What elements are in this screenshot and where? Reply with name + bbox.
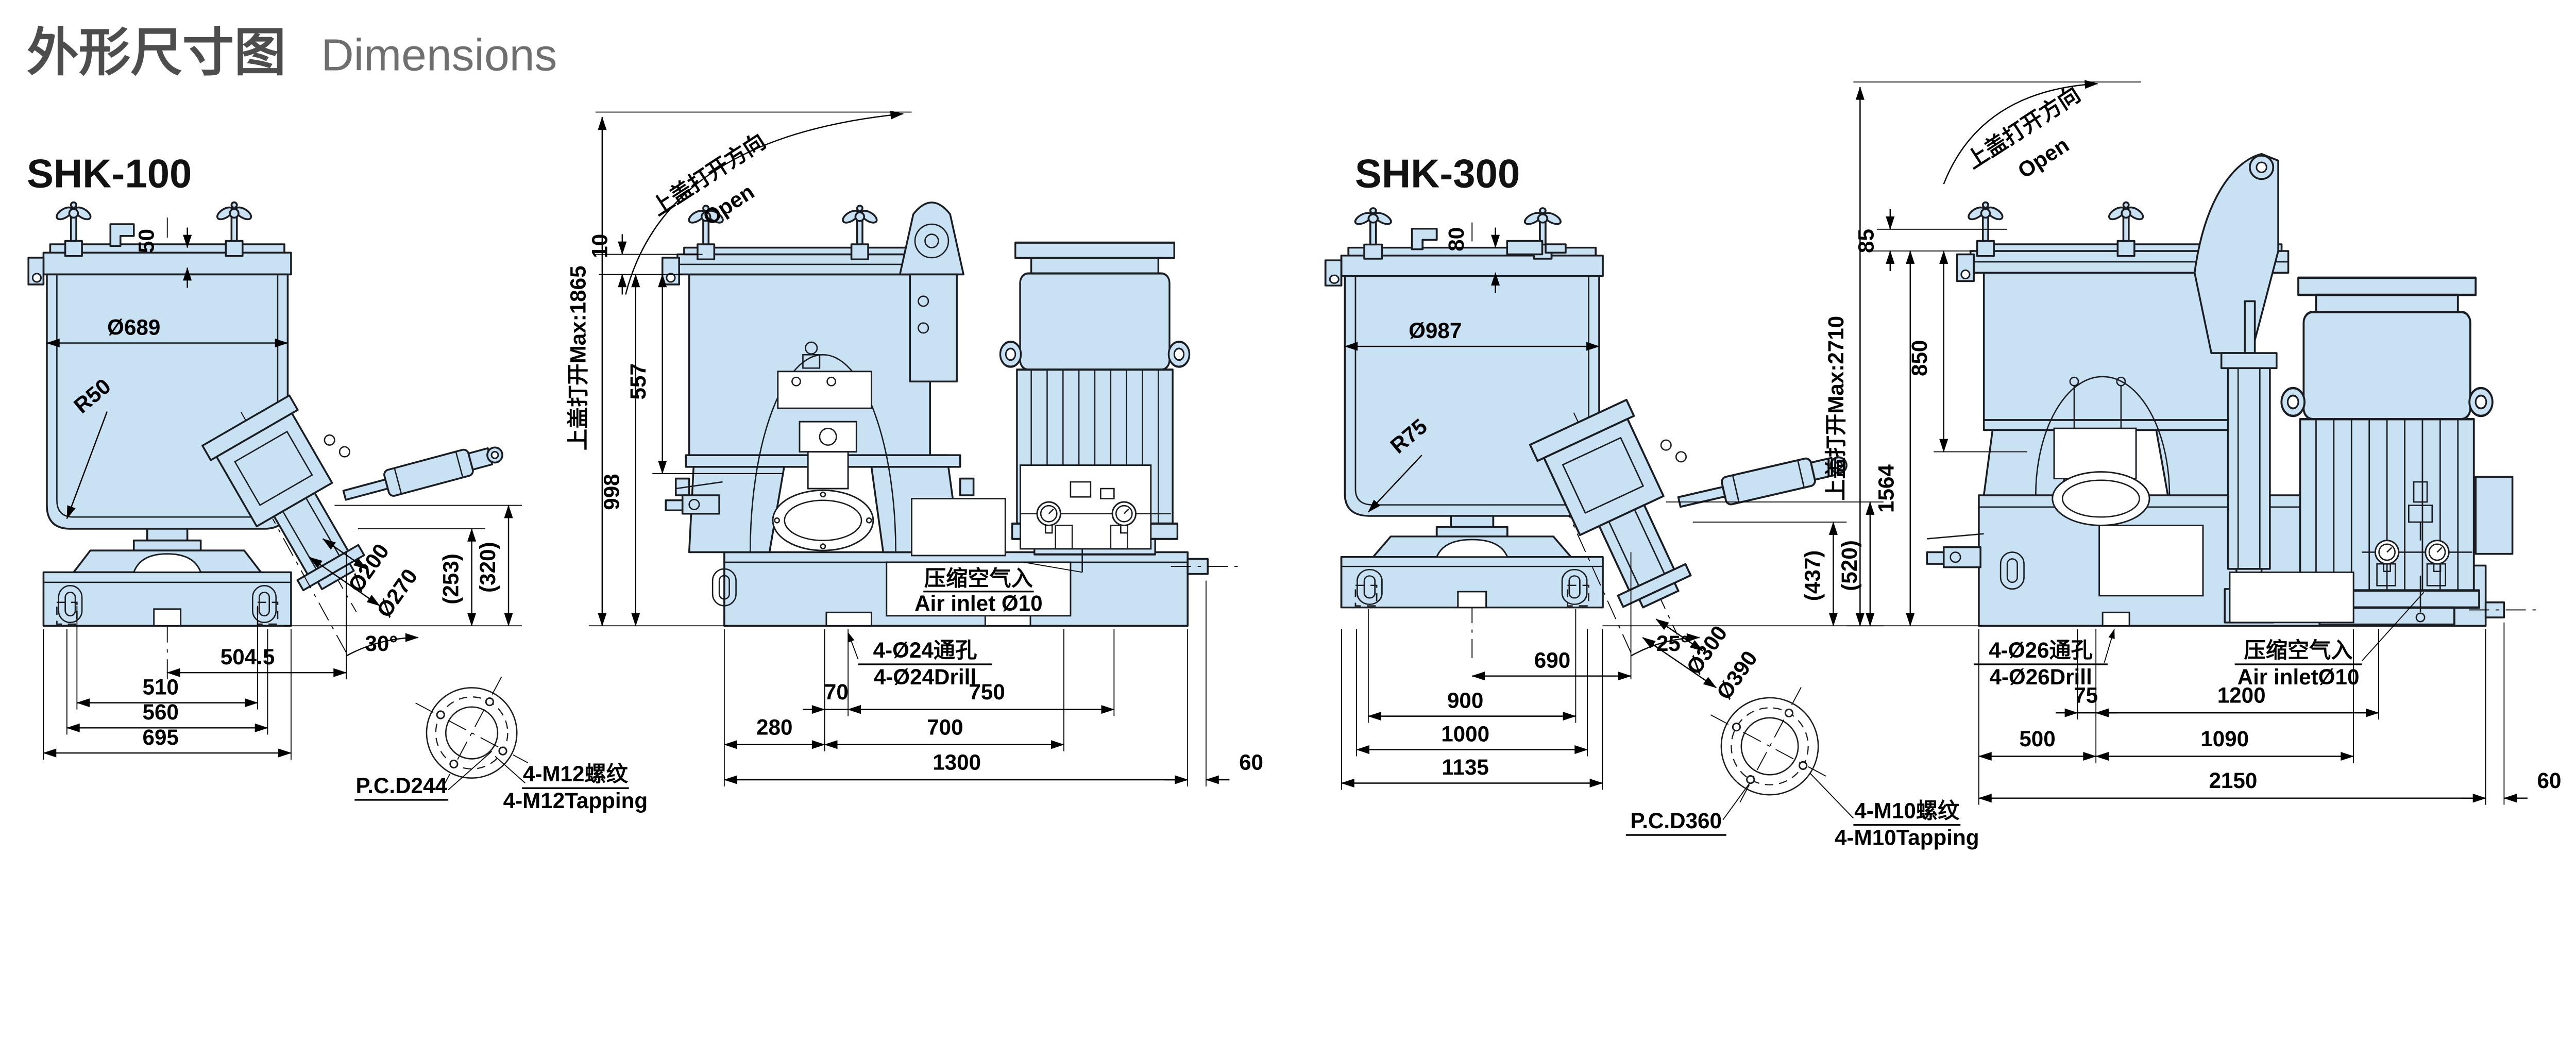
dim-center-to-outlet: 690: [1534, 648, 1570, 672]
label-tapping-en: 4-M10Tapping: [1835, 826, 1979, 850]
label-holes-zh: 4-Ø26通孔: [1989, 638, 2093, 662]
dim-outlet-flange-diameter: Ø390: [1711, 646, 1762, 703]
dim-outlet-height-2: (520): [1837, 540, 1861, 591]
dim-len-1090: 1090: [2200, 727, 2249, 751]
label-tapping-zh: 4-M12螺纹: [523, 762, 629, 786]
dim-outlet-height-1: (253): [439, 554, 463, 605]
dim-len-700: 700: [927, 715, 963, 739]
dimensions-drawing: 外形尺寸图 Dimensions SHK-100 SHK-300 50 Ø689…: [0, 0, 2576, 857]
dim-height-2: 1564: [1874, 464, 1898, 513]
dim-len-280: 280: [756, 715, 792, 739]
dim-bowl-diameter: Ø689: [107, 315, 160, 339]
label-holes-en: 4-Ø24Drill: [874, 665, 976, 689]
label-tapping-en: 4-M12Tapping: [503, 789, 648, 813]
page-title-en: Dimensions: [321, 29, 557, 80]
dim-height-1: 850: [1907, 340, 1931, 376]
dim-lid-offset: 50: [134, 229, 159, 253]
label-air-inlet-en: Air inletØ10: [2238, 665, 2360, 689]
dim-len-500: 500: [2019, 727, 2055, 751]
shk300-pcd-detail: P.C.D360 4-M10螺纹 4-M10Tapping: [1626, 687, 1979, 849]
dim-width-3: 695: [143, 725, 179, 749]
shk300-side-machine: [1927, 154, 2536, 626]
model-label-shk100: SHK-100: [27, 151, 192, 196]
label-air-inlet-en: Air inlet Ø10: [914, 591, 1043, 615]
dim-outlet-height-1: (437): [1800, 550, 1824, 601]
dim-width-2: 1000: [1441, 722, 1489, 746]
dim-chute-angle: 30°: [365, 631, 398, 656]
page-title-zh: 外形尺寸图: [27, 24, 286, 81]
dim-center-to-outlet: 504.5: [221, 645, 275, 669]
label-pcd: P.C.D244: [355, 774, 447, 798]
dim-len-60: 60: [1239, 750, 1263, 774]
dim-width-1: 900: [1447, 688, 1483, 712]
dim-height-1: 557: [626, 363, 650, 399]
label-tapping-zh: 4-M10螺纹: [1854, 799, 1960, 823]
dim-len-70: 70: [824, 680, 849, 704]
shk100-front-machine: [28, 203, 505, 680]
title-block: 外形尺寸图 Dimensions SHK-100 SHK-300: [27, 24, 1520, 196]
dim-lid-gap: 10: [588, 234, 612, 258]
shk100-side-view: 压缩空气入 Air inlet Ø10 上盖打开方向 Open 上盖打开Max:…: [566, 112, 1263, 786]
label-air-inlet-zh: 压缩空气入: [2244, 638, 2353, 662]
dim-len-1300: 1300: [933, 750, 981, 774]
dim-len-60: 60: [2537, 768, 2562, 793]
dim-lid-offset: 80: [1444, 227, 1468, 252]
shk100-front-view: 50 Ø689 R50 Ø200 Ø270 (253) (320) 30° 50…: [28, 203, 648, 813]
dim-lid-gap: 85: [1854, 229, 1878, 253]
dim-width-2: 560: [143, 700, 179, 724]
shk300-front-view: 80 Ø987 R75 Ø300 Ø390 (437) (520) 25° 69…: [1326, 208, 1979, 850]
dim-bowl-diameter: Ø987: [1409, 319, 1462, 343]
dim-chute-angle: 25°: [1656, 631, 1689, 656]
shk300-side-view: 上盖打开方向 Open 上盖打开Max:2710 85 850 1564 75 …: [1824, 82, 2562, 805]
label-holes-en: 4-Ø26Drill: [1989, 665, 2092, 689]
shk100-pcd-detail: P.C.D244 4-M12螺纹 4-M12Tapping: [354, 677, 648, 813]
shk100-side-machine: 压缩空气入 Air inlet Ø10: [663, 203, 1241, 626]
model-label-shk300: SHK-300: [1355, 151, 1520, 196]
air-inlet-callout-box: 压缩空气入 Air inlet Ø10: [887, 562, 1082, 616]
dim-height-2: 998: [599, 474, 623, 510]
dim-len-2150: 2150: [2209, 768, 2257, 793]
dim-open-max: 上盖打开Max:2710: [1824, 316, 1848, 501]
label-air-inlet-zh: 压缩空气入: [924, 566, 1033, 590]
dim-width-3: 1135: [1442, 755, 1489, 779]
dim-open-max: 上盖打开Max:1865: [566, 265, 590, 450]
dim-outlet-height-2: (320): [476, 542, 500, 593]
label-pcd: P.C.D360: [1631, 809, 1722, 833]
label-holes-zh: 4-Ø24通孔: [873, 638, 977, 662]
dim-width-1: 510: [143, 675, 179, 699]
